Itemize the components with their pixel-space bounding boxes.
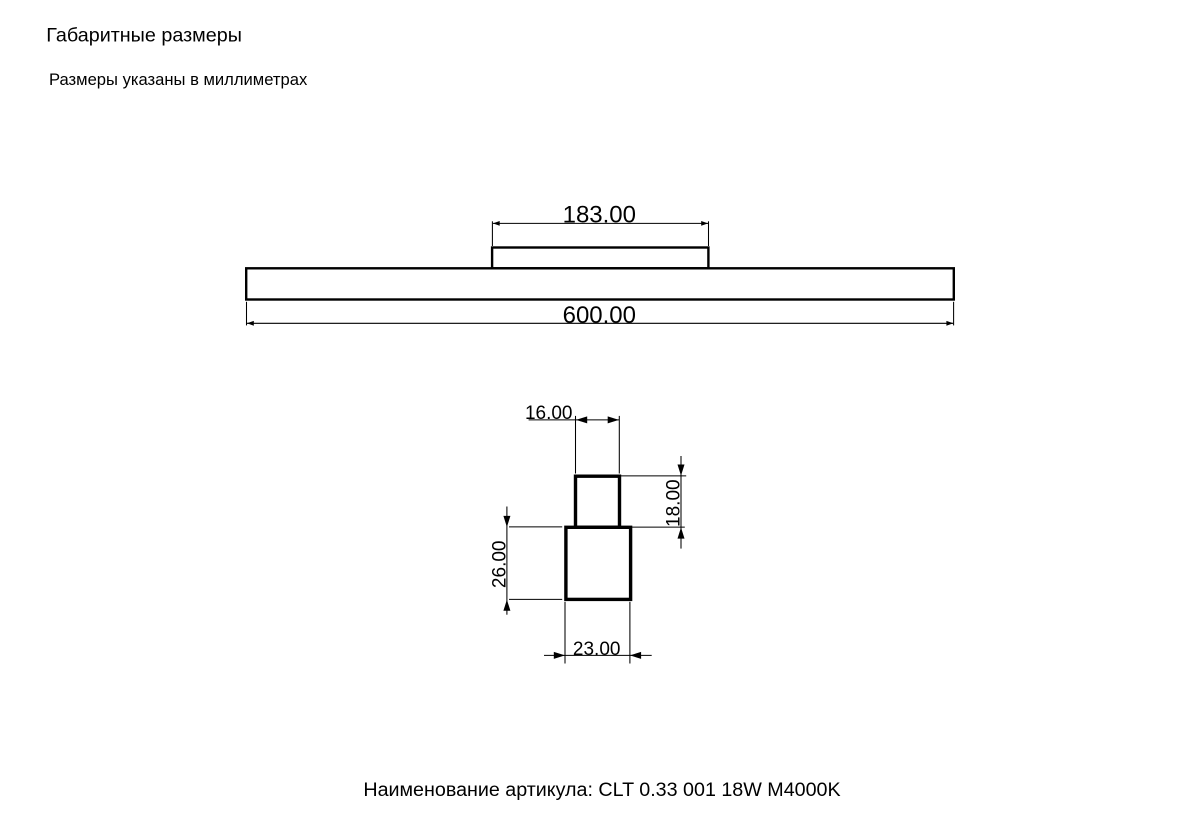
- svg-text:Наименование артикула: CLT 0.3: Наименование артикула: CLT 0.33 001 18W …: [363, 779, 840, 801]
- svg-text:Габаритные размеры: Габаритные размеры: [46, 24, 242, 46]
- svg-text:18.00: 18.00: [664, 479, 685, 527]
- svg-text:23.00: 23.00: [573, 639, 621, 660]
- svg-text:26.00: 26.00: [489, 541, 510, 589]
- svg-text:16.00: 16.00: [525, 403, 573, 424]
- svg-text:183.00: 183.00: [563, 202, 636, 229]
- svg-text:Размеры указаны в миллиметрах: Размеры указаны в миллиметрах: [49, 70, 308, 89]
- svg-text:600.00: 600.00: [563, 302, 636, 329]
